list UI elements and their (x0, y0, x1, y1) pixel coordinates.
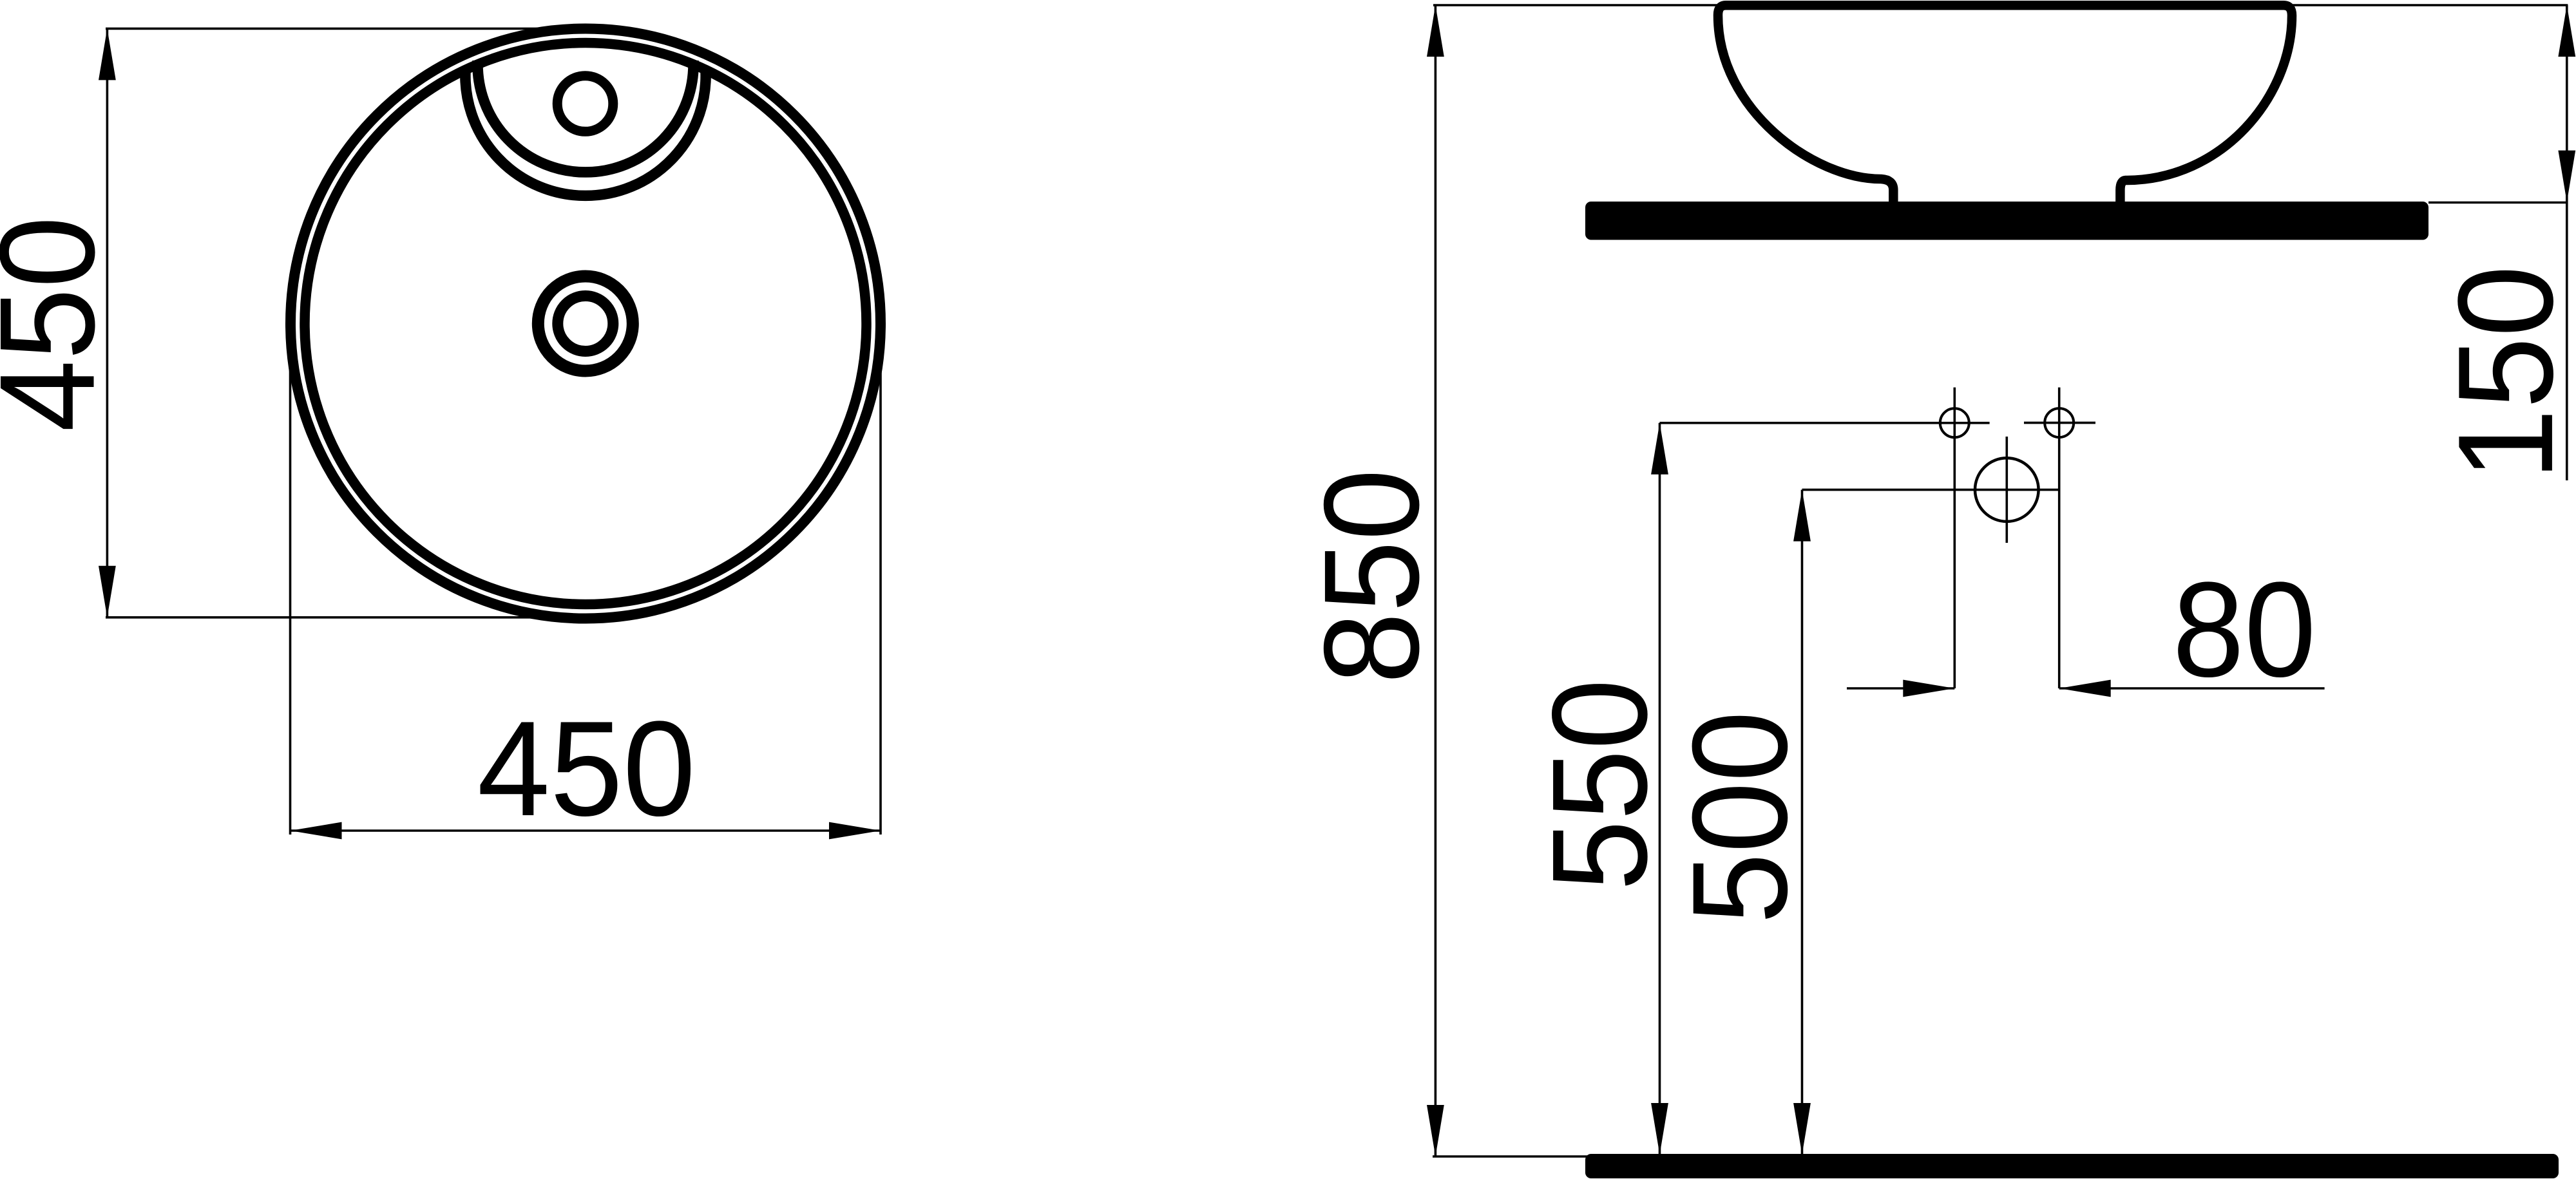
svg-text:450: 450 (477, 693, 696, 844)
svg-text:150: 150 (2430, 265, 2576, 480)
svg-text:450: 450 (0, 216, 123, 432)
svg-text:500: 500 (1664, 711, 1815, 924)
svg-text:850: 850 (1295, 469, 1447, 684)
svg-text:80: 80 (2173, 554, 2316, 705)
svg-text:550: 550 (1524, 679, 1675, 891)
